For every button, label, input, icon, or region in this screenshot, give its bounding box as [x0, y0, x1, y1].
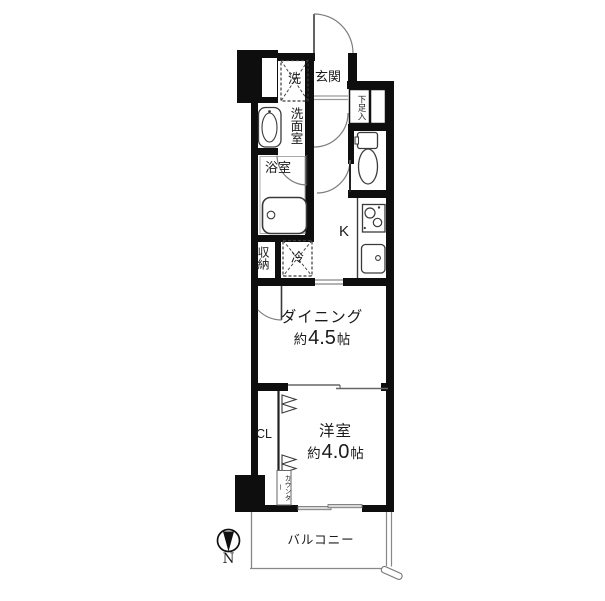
shoe-side-box: [371, 90, 386, 124]
toilet-bowl-icon: [359, 149, 378, 184]
bathroom-label: 浴室: [252, 161, 304, 176]
storage-label: 収納: [256, 244, 269, 272]
western-room-approx: 約: [307, 446, 321, 462]
floor-plan: 洗 玄関 下足入 洗面室 浴室 収納 冷 K ダイニング 約 4.5 帖 CL …: [0, 0, 605, 601]
balcony-label: バルコニー: [271, 533, 371, 547]
dining-name: ダイニング: [258, 309, 386, 327]
western-room-name: 洋室: [287, 423, 384, 441]
linework-layer: [0, 0, 605, 601]
hall-door-arc: [314, 113, 348, 147]
toilet-tank-icon: [358, 133, 378, 149]
closet-bifold-1: [282, 395, 296, 404]
shoe-cabinet-label: 下足入: [353, 91, 366, 124]
washroom-label: 洗面室: [289, 103, 303, 149]
compass-north-label: N: [219, 552, 238, 568]
counter-label: カウンター: [278, 472, 290, 503]
closet-label: CL: [251, 427, 277, 441]
bathtub-fixture: [263, 198, 307, 234]
stove-knob-1: [378, 206, 380, 208]
western-room-unit: 帖: [350, 446, 364, 462]
dining-size: 4.5: [308, 327, 336, 350]
entrance-door-arc: [314, 14, 353, 53]
western-room-size: 4.0: [322, 441, 350, 464]
toilet-handle-icon: [355, 137, 359, 144]
washbasin-faucet-icon: [268, 110, 271, 113]
dining-label: ダイニング 約 4.5 帖: [258, 309, 386, 350]
stove-knob-2: [364, 227, 366, 229]
window-pane-1: [298, 507, 331, 510]
window-pane-2: [328, 505, 362, 508]
washer-label: 洗: [281, 72, 308, 87]
refrigerator-label: 冷: [283, 251, 312, 266]
kitchen-label: K: [331, 223, 357, 240]
dining-unit: 帖: [337, 332, 351, 348]
dining-size-line: 約 4.5 帖: [258, 327, 386, 350]
closet-bifold-2: [282, 404, 296, 413]
entrance-label: 玄関: [305, 70, 351, 85]
balcony-end-cap: [380, 566, 403, 581]
western-room-size-line: 約 4.0 帖: [287, 441, 384, 464]
kitchen-door-arc: [317, 160, 350, 193]
kitchen-sink-icon: [362, 245, 386, 274]
western-room-label: 洋室 約 4.0 帖: [287, 423, 384, 464]
dining-approx: 約: [294, 332, 308, 348]
